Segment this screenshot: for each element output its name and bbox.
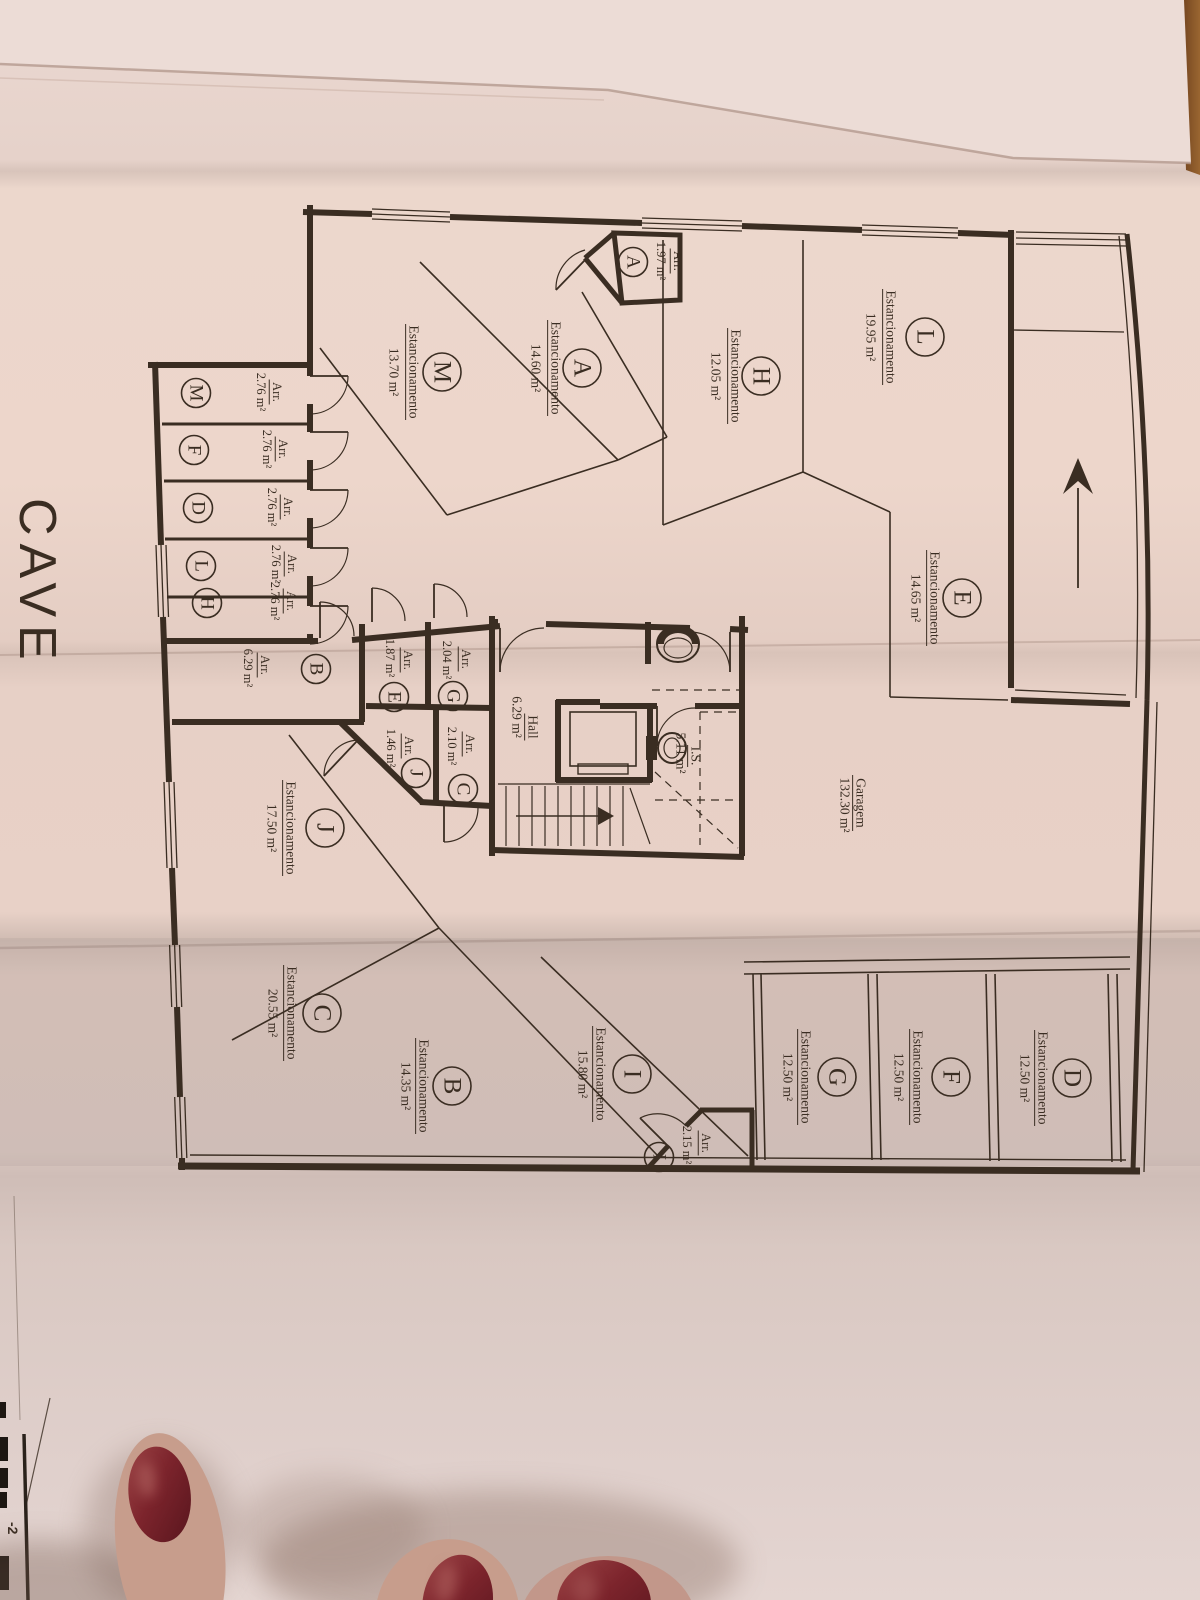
space-letter: M <box>429 361 456 383</box>
storage-word: Arr. <box>285 554 299 574</box>
parking-area: 14.60 m² <box>529 344 544 392</box>
parking-word: Estancionamento <box>1036 1032 1051 1125</box>
space-letter: H <box>197 596 218 610</box>
parking-area: 13.70 m² <box>387 348 402 396</box>
space-letter: H <box>748 367 775 385</box>
storage-word: Arr. <box>402 736 416 756</box>
parking-area: 17.50 m² <box>265 804 280 852</box>
space-letter: C <box>309 1005 336 1022</box>
parking-word: Estancionamento <box>407 326 422 419</box>
storage-area: 2.76 m² <box>260 430 274 469</box>
space-letter: D <box>1059 1069 1086 1087</box>
parking-word: Estancionamento <box>417 1040 432 1133</box>
space-letter: A <box>623 255 644 269</box>
space-letter: M <box>186 385 207 402</box>
storage-word: Arr. <box>459 649 473 669</box>
parking-word: Estancionamento <box>928 552 943 645</box>
parking-area: 12.50 m² <box>892 1053 907 1101</box>
space-letter: B <box>439 1078 466 1095</box>
space-letter: J <box>406 769 427 776</box>
space-letter: I <box>649 1154 670 1160</box>
parking-word: Estancionamento <box>594 1028 609 1121</box>
storage-area: 1.97 m² <box>654 242 668 281</box>
parking-area: 12.05 m² <box>709 352 724 400</box>
parking-area: 12.50 m² <box>781 1053 796 1101</box>
hall-word: Hall <box>526 715 541 738</box>
storage-area: 2.76 m² <box>254 373 268 412</box>
parking-area: 12.50 m² <box>1018 1054 1033 1102</box>
garage-word: Garagem <box>854 778 869 828</box>
storage-area: 2.15 m² <box>680 1126 694 1165</box>
storage-area: 2.76 m² <box>265 488 279 527</box>
storage-area: 2.10 m² <box>445 727 459 766</box>
space-letter: L <box>191 560 212 572</box>
sheet-number-fragment: -2 <box>5 1522 21 1535</box>
storage-word: Arr. <box>258 655 272 675</box>
space-letter: E <box>384 691 405 703</box>
storage-area: 6.29 m² <box>241 649 255 688</box>
photographed-floor-plan: LEstancionamento19.95 m²HEstancionamento… <box>0 0 1200 1600</box>
parking-word: Estancionamento <box>799 1031 814 1124</box>
storage-word: Arr. <box>281 497 295 517</box>
parking-word: Estancionamento <box>729 330 744 423</box>
space-letter: E <box>949 590 976 605</box>
storage-word: Arr. <box>463 734 477 754</box>
storage-area: 2.04 m² <box>440 641 454 680</box>
parking-word: Estancionamento <box>549 322 564 415</box>
space-letter: J <box>312 823 339 833</box>
space-letter: F <box>938 1070 965 1084</box>
space-letter: G <box>443 689 464 703</box>
space-letter: F <box>184 445 205 456</box>
parking-area: 14.35 m² <box>399 1062 414 1110</box>
garage-label: Garagem132.30 m² <box>838 775 869 833</box>
wc-area: 5.11 m² <box>674 732 689 773</box>
space-letter: I <box>619 1070 646 1078</box>
storage-word: Arr. <box>401 650 415 670</box>
storage-area: 1.46 m² <box>384 729 398 768</box>
parking-area: 19.95 m² <box>864 313 879 361</box>
storage-word: Arr. <box>699 1133 713 1153</box>
storage-word: Arr. <box>284 591 298 611</box>
storage-word: Arr. <box>671 251 685 271</box>
space-letter: C <box>453 783 474 796</box>
space-letter: B <box>306 663 327 676</box>
storage-word: Arr. <box>276 439 290 459</box>
storage-area: 2.76 m² <box>268 582 282 621</box>
storage-area: 1.87 m² <box>383 639 397 678</box>
hall-area: 6.29 m² <box>510 696 525 738</box>
garage-area: 132.30 m² <box>838 777 853 832</box>
parking-area: 14.65 m² <box>909 574 924 622</box>
space-letter: A <box>569 359 596 377</box>
parking-area: 20.55 m² <box>266 989 281 1037</box>
parking-word: Estancionamento <box>284 782 299 875</box>
floor-title: CAVE <box>8 498 66 668</box>
parking-word: Estancionamento <box>911 1031 926 1124</box>
parking-word: Estancionamento <box>285 967 300 1060</box>
wc-word: I.S. <box>689 747 704 766</box>
storage-area: 2.76 m² <box>269 545 283 584</box>
floor-plan-photo-svg: LEstancionamento19.95 m²HEstancionamento… <box>0 0 1200 1600</box>
storage-word: Arr. <box>270 382 284 402</box>
parking-word: Estancionamento <box>884 291 899 384</box>
space-letter: L <box>912 329 939 344</box>
space-letter: G <box>824 1068 851 1086</box>
space-letter: D <box>188 501 209 515</box>
parking-area: 15.80 m² <box>576 1050 591 1098</box>
plan-paper-sheet <box>0 0 1200 1600</box>
